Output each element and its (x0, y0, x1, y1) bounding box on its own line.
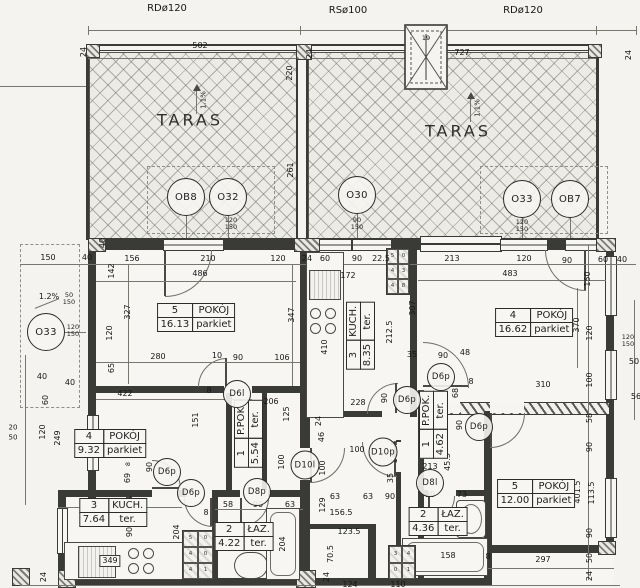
dimension-label: 280 (150, 353, 165, 361)
dim-line (418, 280, 606, 281)
dim-line (488, 568, 614, 569)
room-label-az-4.22: 2ŁAZ.4.22ter. (215, 522, 274, 550)
flue-cell: 0 (198, 547, 213, 563)
room-label-cell: 4.22 (214, 536, 244, 551)
room-label-cell: POKÓJ (192, 303, 235, 318)
door-opening (490, 402, 524, 413)
opening-symbol-ob7: OB7 (551, 180, 589, 218)
room-label-cell: ter. (360, 302, 375, 341)
door-symbol-d10l: D10l (291, 451, 320, 480)
door-opening (152, 490, 178, 497)
room-label-pokj-9.32: 4POKÓJ9.32parkiet (74, 429, 146, 457)
dim-line (25, 355, 26, 505)
terrace-top-wall-inner (86, 50, 600, 51)
opening-symbol-o30: O30 (338, 176, 376, 214)
masonry-pier (596, 238, 616, 252)
dimension-label: 158 (440, 552, 455, 560)
dimension-label: 24 (302, 255, 312, 263)
window-size-note: 120150 (225, 217, 237, 231)
dimension-label: 8 (125, 462, 132, 466)
roof-dim-line (88, 30, 637, 31)
window-size-note: 120150 (516, 219, 528, 233)
window (605, 256, 617, 316)
room-label-cell: POKÓJ (532, 479, 575, 494)
room-label-cell: 1 (419, 429, 434, 459)
flue-cell: 4 (387, 264, 398, 279)
terrace-left-wall (86, 44, 89, 240)
room-label-cell: 2 (408, 507, 438, 522)
room-label-cell: POKÓJ (103, 429, 146, 444)
room-label-az-4.36: 2ŁAZ.4.36ter. (409, 507, 468, 535)
opening-symbol-o33: O33 (503, 180, 541, 218)
door-symbol-d6p: D6p (153, 458, 181, 486)
dimension-label: 150 (584, 271, 592, 286)
room-label-cell: ter. (108, 512, 147, 527)
room-label-cell: parkiet (530, 322, 573, 337)
room-label-cell: 5 (497, 479, 534, 494)
room-label-ppok-4.62: 1P.POK.4.62ter. (419, 391, 447, 459)
flue-cell: 0 (198, 531, 213, 547)
terrace-dim-line (310, 58, 596, 59)
room-label-pokj-12.00: 5POKÓJ12.00parkiet (497, 479, 575, 507)
dimension-label: 40 (617, 256, 627, 264)
dimension-label: 90 (438, 352, 448, 360)
dimension-label: 65 (108, 363, 116, 373)
dimension-label: 8 (485, 553, 490, 561)
room-label-cell: KUCH. (108, 498, 147, 513)
dim-line (292, 264, 293, 386)
dimension-label: 90 (381, 393, 389, 403)
dimension-label: 204 (279, 536, 287, 551)
wall-ppok1-right (262, 393, 267, 493)
dim-line (96, 362, 300, 363)
dimension-label: 307 (409, 300, 417, 315)
flue-cell: 5 (183, 531, 198, 547)
dimension-label: 50 (629, 358, 639, 366)
dimension-label: 60 (598, 256, 608, 264)
room-label-cell: 16.13 (157, 317, 194, 332)
dimension-label: 90 (352, 255, 362, 263)
dimension-label: 156 (124, 255, 139, 263)
room-label-cell: 1 (234, 438, 249, 468)
room-label-cell: KUCH. (346, 302, 361, 341)
dimension-label: 24 (315, 416, 323, 426)
room-label-cell: 4 (495, 308, 532, 323)
slope-label: 1.1% (201, 91, 208, 109)
dim-line (20, 585, 620, 586)
dimension-label: 58 (586, 413, 594, 423)
dimension-label: 50 (9, 435, 18, 442)
dim-line (96, 281, 296, 282)
window-size-note: 120150 (67, 324, 79, 338)
room-label-cell: 2 (214, 522, 244, 537)
dimension-label: 370 (573, 317, 581, 332)
dimension-label: 40 (37, 373, 47, 381)
dimension-label: 483 (502, 270, 517, 278)
door-symbol-d8l: D8l (416, 469, 444, 497)
dimension-label: 24 (323, 572, 331, 582)
dimension-label: 24 (40, 572, 48, 582)
dim-tick (636, 26, 637, 35)
toilet (234, 552, 268, 579)
terrace-top-wall (86, 44, 600, 46)
roof-drain-label: RDø120 (147, 4, 187, 14)
flue-cell: 1 (402, 563, 415, 580)
room-label-cell: 4.36 (408, 521, 438, 536)
dimension-label: 40 (65, 379, 75, 387)
dimension-label: 120 (270, 255, 285, 263)
room-label-cell: ter. (243, 536, 274, 551)
room-label-ppok-5.54: 1P.POK.5.54ter. (234, 400, 262, 468)
room-label-cell: 4 (74, 429, 104, 444)
wall-bottom-right (484, 545, 614, 553)
dimension-label: 68 (452, 388, 460, 398)
dimension-label: 410 (321, 339, 329, 354)
dimension-label: 8 (468, 378, 473, 386)
leader-line (570, 217, 571, 238)
terrace-dim-line (88, 58, 296, 59)
dimension-label: 327 (124, 304, 132, 319)
room-label-cell: 9.32 (74, 443, 104, 458)
dim-line (128, 264, 129, 384)
dimension-label: 261 (287, 162, 295, 177)
flue-cell: 8 (398, 279, 409, 294)
dimension-label: 8 (203, 509, 208, 517)
dimension-label: 90 (385, 493, 395, 501)
masonry-pier (598, 541, 616, 555)
dimension-label: 349 (99, 555, 120, 567)
room-label-cell: 8.35 (360, 340, 375, 370)
dimension-label: 73 (457, 491, 467, 499)
door-symbol-d8p: D8p (243, 478, 271, 506)
dimension-label: 110 (390, 581, 405, 588)
room-label-cell: 12.00 (497, 493, 534, 508)
stove-burners (126, 546, 156, 576)
terrace-divider-wall (296, 44, 298, 240)
window (318, 239, 352, 251)
door-symbol-d6p: D6p (465, 413, 493, 441)
room-label-cell: 3 (79, 498, 109, 513)
left-reference-line (0, 86, 88, 87)
dimension-label: 90 (456, 420, 464, 430)
dimension-label: 151 (192, 412, 200, 427)
dimension-label: 113.5 (588, 482, 596, 505)
dimension-label: 100 (349, 446, 364, 454)
room-label-cell: ter. (433, 391, 448, 430)
dimension-label: 69 (124, 473, 132, 483)
dimension-label: 120 (586, 325, 594, 340)
window (420, 236, 502, 252)
slope-label: 1.1% (475, 99, 482, 117)
dim-tick (596, 26, 597, 35)
dimension-label: 486 (192, 270, 207, 278)
dimension-label: 8 (206, 387, 211, 395)
flue-cell: 4 (387, 279, 398, 294)
dimension-label: 90 (233, 354, 243, 362)
dimension-label: 24 (586, 571, 594, 581)
window (605, 350, 617, 400)
opening-symbol-ob8: OB8 (167, 178, 205, 216)
dimension-label: 204 (173, 524, 181, 539)
dimension-label: 50 (586, 553, 594, 563)
dimension-label: 24 (80, 47, 88, 57)
slope-arrow-line (470, 98, 471, 122)
flue-cell: 4 (183, 547, 198, 563)
room-label-kuch-8.35: 3KUCH.8.35ter. (346, 302, 374, 369)
flue-cell: 4 (402, 546, 415, 563)
flue-cell: 0 (398, 249, 409, 264)
door-symbol-d6p: D6p (427, 363, 455, 391)
door-symbol-d6l: D6l (223, 380, 251, 408)
room-label-pokj-16.13: 5POKÓJ16.13parkiet (157, 303, 235, 331)
window-size-note: 50150 (63, 292, 75, 306)
dimension-label: 120 (106, 325, 114, 340)
door-leaf (164, 250, 166, 296)
terrace-right-label: TARAS (425, 122, 491, 141)
dimension-label: 1.2% (39, 293, 59, 301)
room-label-cell: ter. (248, 400, 263, 439)
dimension-label: 124 (342, 581, 357, 588)
dimension-label: 19 (422, 35, 430, 42)
window (500, 239, 548, 251)
dimension-label: 10 (212, 352, 222, 360)
room-label-cell: parkiet (103, 443, 146, 458)
dimension-label: 172 (340, 272, 355, 280)
dimension-label: 63 (285, 501, 295, 509)
room-label-cell: 7.64 (79, 512, 109, 527)
room-label-cell: 5.54 (248, 438, 263, 468)
dimension-label: 100 (319, 460, 327, 475)
room-label-cell: 5 (157, 303, 194, 318)
chimney-flue-block: 504041 (182, 530, 214, 580)
dimension-label: 120 (39, 424, 47, 439)
dimension-label: 129 (319, 497, 327, 512)
kitchen-sink (309, 270, 341, 300)
dimension-label: 40 (99, 238, 107, 248)
dimension-label: 310 (535, 381, 550, 389)
room-label-cell: ter. (437, 521, 468, 536)
floor-plan-drawing: TARAS TARAS 1.1% 1.1% (0, 0, 640, 588)
flue-cell: 1 (198, 563, 213, 579)
window-size-note: 90150 (351, 217, 363, 231)
dimension-label: 20 (9, 425, 18, 432)
room-label-cell: POKÓJ (530, 308, 573, 323)
dimension-label: 142 (108, 263, 116, 278)
dimension-label: 347 (288, 307, 296, 322)
dimension-label: 60 (42, 395, 50, 405)
room-label-cell: ŁAZ. (437, 507, 468, 522)
dimension-label: 48 (460, 349, 470, 357)
dimension-label: 35 (387, 473, 395, 483)
room-label-cell: 16.62 (495, 322, 532, 337)
room-label-cell: parkiet (192, 317, 235, 332)
dimension-label: 727 (454, 49, 469, 57)
roof-drain-label: RDø120 (503, 6, 543, 16)
dimension-label: 63 (363, 493, 373, 501)
terrace-left-label: TARAS (157, 111, 223, 130)
dimension-label: 35 (407, 351, 417, 359)
dimension-label: 90 (586, 442, 594, 452)
dimension-label: 58 (223, 501, 233, 509)
dimension-label: 106 (274, 354, 289, 362)
dimension-label: 297 (535, 556, 550, 564)
dimension-label: 90 (126, 527, 134, 537)
dimension-label: 22.5 (372, 255, 390, 263)
door-leaf (152, 487, 180, 489)
window-size-note: 120150 (622, 334, 634, 348)
terrace-divider-wall (306, 44, 308, 240)
dimension-label: 63 (330, 493, 340, 501)
dim-tick (300, 26, 301, 35)
opening-symbol-o32: O32 (209, 178, 247, 216)
dimension-label: 125 (283, 406, 291, 421)
masonry-pier (294, 238, 320, 252)
flue-cell: 0 (389, 563, 402, 580)
dimension-label: 249 (54, 430, 62, 445)
chimney-flue-block: 3401 (388, 545, 416, 580)
dimension-label: 220 (286, 65, 294, 80)
dimension-label: 422 (117, 390, 132, 398)
room-label-kuch-7.64: 3KUCH.7.64ter. (79, 498, 146, 526)
room-label-cell: parkiet (532, 493, 575, 508)
door-symbol-d6p: D6p (177, 479, 205, 507)
dimension-label: 228 (350, 399, 365, 407)
dimension-label: 60 (320, 255, 330, 263)
room-label-pokj-16.62: 4POKÓJ16.62parkiet (495, 308, 573, 336)
dimension-label: 212.5 (386, 321, 394, 344)
dimension-label: 100 (586, 372, 594, 387)
dimension-label: 210 (200, 255, 215, 263)
dimension-label: 46 (318, 432, 326, 442)
dimension-label: 156.5 (330, 509, 353, 517)
door-symbol-d10p: D10p (369, 438, 398, 467)
dimension-label: 123.5 (338, 528, 361, 536)
flue-cell: 3 (398, 264, 409, 279)
opening-symbol-o33: O33 (27, 313, 65, 351)
dimension-label: 56 (631, 393, 640, 401)
dimension-label: 40 (82, 254, 92, 262)
room-label-cell: ŁAZ. (243, 522, 274, 537)
roof-drain-label: RSø100 (329, 6, 368, 16)
wall-room932-right (226, 393, 232, 493)
door-symbol-d6p: D6p (393, 386, 421, 414)
leader-line (186, 215, 187, 238)
masonry-pier (588, 44, 602, 58)
dimension-label: 24 (306, 49, 314, 59)
dimension-label: 100 (278, 454, 286, 469)
dimension-label: 120 (516, 255, 531, 263)
dimension-label: 70.5 (327, 545, 335, 563)
masonry-pier (12, 568, 30, 586)
stove-burners (308, 306, 338, 336)
masonry-pier (86, 44, 100, 58)
dimension-label: 90 (562, 257, 572, 265)
dimension-label: 24 (625, 50, 633, 60)
door-leaf (210, 498, 212, 526)
dim-tick (88, 26, 89, 35)
dimension-label: 213 (444, 255, 459, 263)
dimension-label: 150 (40, 254, 55, 262)
wall-vestibule-v (368, 524, 376, 580)
window (605, 478, 617, 538)
dimension-label: 206 (263, 398, 278, 406)
dimension-label: 502 (192, 42, 207, 50)
flue-cell: 4 (183, 563, 198, 579)
dimension-label: 90 (586, 528, 594, 538)
room-label-cell: 3 (346, 340, 361, 370)
room-label-cell: 4.62 (433, 429, 448, 459)
flue-cell: 3 (389, 546, 402, 563)
